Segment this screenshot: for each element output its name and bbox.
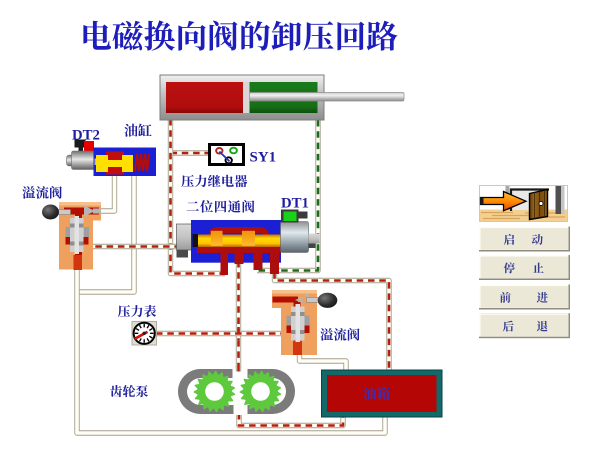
svg-text:DT1: DT1 [281,196,309,212]
svg-text:DT2: DT2 [72,128,100,144]
svg-text:SY1: SY1 [250,150,277,166]
